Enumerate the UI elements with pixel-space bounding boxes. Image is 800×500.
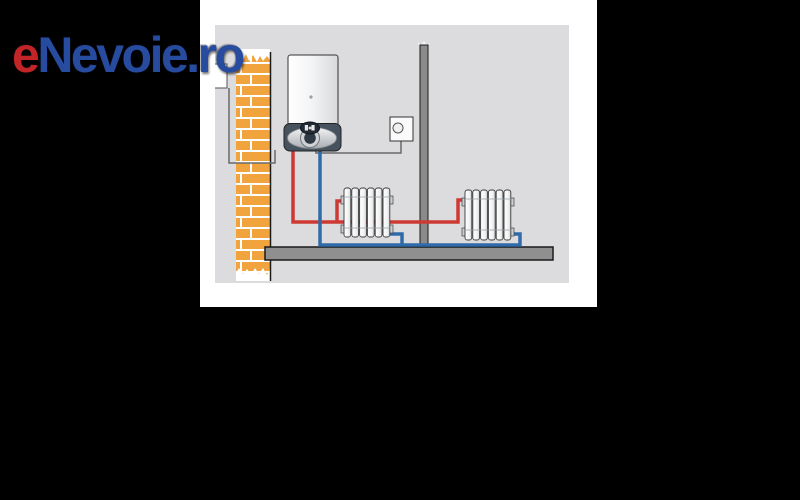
site-logo: eNevoie.ro [12,30,243,80]
screenshot-stage: eNevoie.ro [0,0,800,500]
logo-rest: Nevoie.ro [37,27,242,83]
brick-chimney-wall [236,54,270,275]
thermostat-dial [393,123,403,133]
partition-wall [420,45,428,260]
logo-prefix: e [12,27,37,83]
heating-diagram [215,25,569,283]
boiler-body [288,55,338,126]
radiator-2 [462,190,514,240]
boiler-indicator-dot [309,95,312,98]
floor-slab [265,247,553,260]
wall-mounted-boiler [284,55,341,151]
room-thermostat [390,117,413,141]
radiator-1 [341,188,393,237]
content-canvas [200,0,597,307]
